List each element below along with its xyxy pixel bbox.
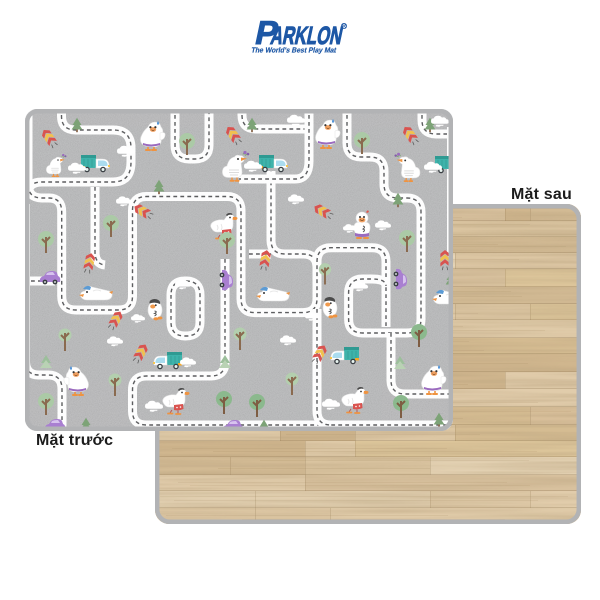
svg-text:The World's Best Play Mat: The World's Best Play Mat — [250, 46, 337, 55]
svg-text:R: R — [342, 24, 347, 30]
